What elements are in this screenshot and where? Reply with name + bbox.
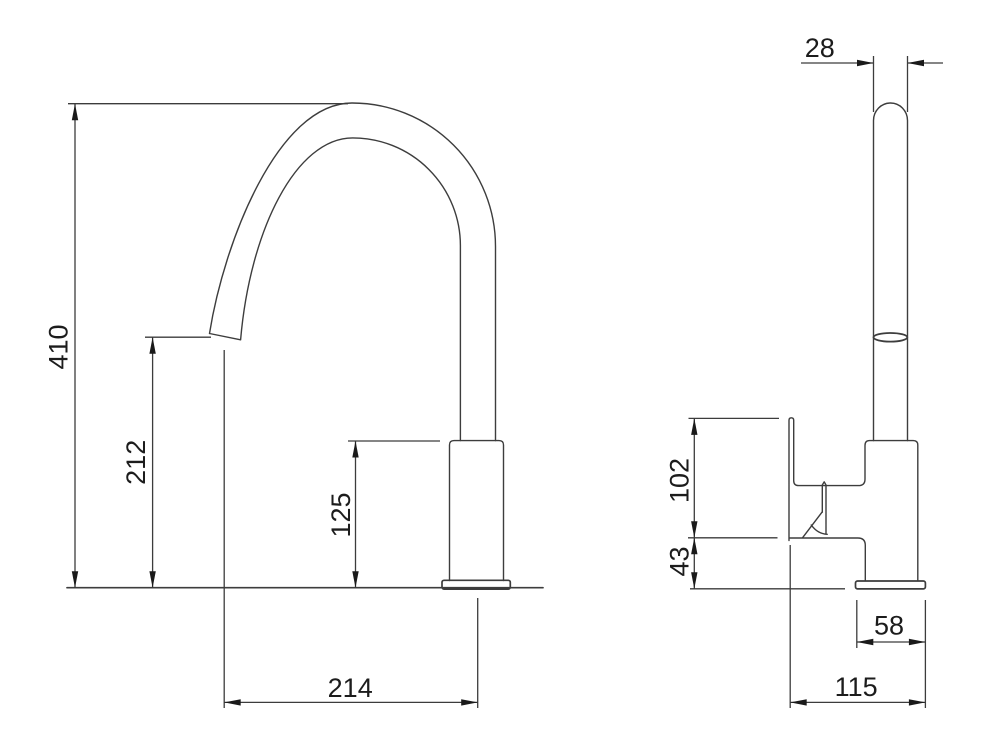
svg-text:125: 125 [326,492,356,537]
svg-text:214: 214 [328,673,373,703]
svg-text:410: 410 [44,324,74,369]
svg-text:102: 102 [665,458,695,503]
svg-text:212: 212 [121,440,151,485]
svg-text:43: 43 [665,546,695,576]
svg-text:58: 58 [874,611,904,641]
svg-text:28: 28 [805,33,835,63]
svg-text:115: 115 [835,672,878,702]
